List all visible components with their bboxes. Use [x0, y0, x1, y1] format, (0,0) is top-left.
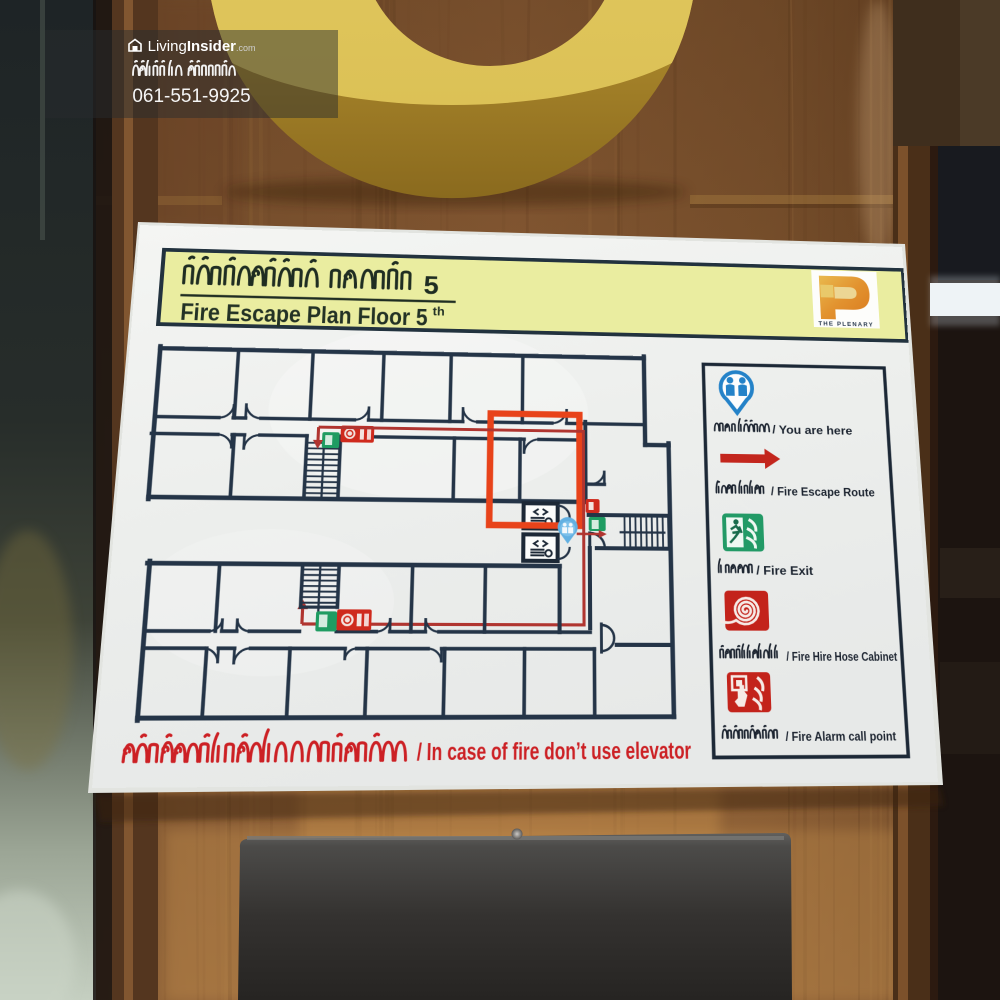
- svg-text:Fire Escape Plan Floor 5: Fire Escape Plan Floor 5: [179, 300, 428, 332]
- svg-text:/ Fire Hire Hose Cabinet: / Fire Hire Hose Cabinet: [786, 651, 898, 664]
- svg-text:THE PLENARY: THE PLENARY: [818, 320, 874, 328]
- svg-text:/ You are here: / You are here: [772, 424, 853, 437]
- svg-text:/ Fire Alarm call point: / Fire Alarm call point: [785, 730, 896, 744]
- svg-text:th: th: [433, 304, 445, 318]
- svg-text:5: 5: [423, 270, 439, 300]
- svg-text:/ Fire Escape Route: / Fire Escape Route: [771, 486, 875, 500]
- svg-text:/ In case of fire don’t use e: / In case of fire don’t use elevator: [417, 738, 692, 766]
- svg-text:/ Fire Exit: / Fire Exit: [756, 565, 814, 578]
